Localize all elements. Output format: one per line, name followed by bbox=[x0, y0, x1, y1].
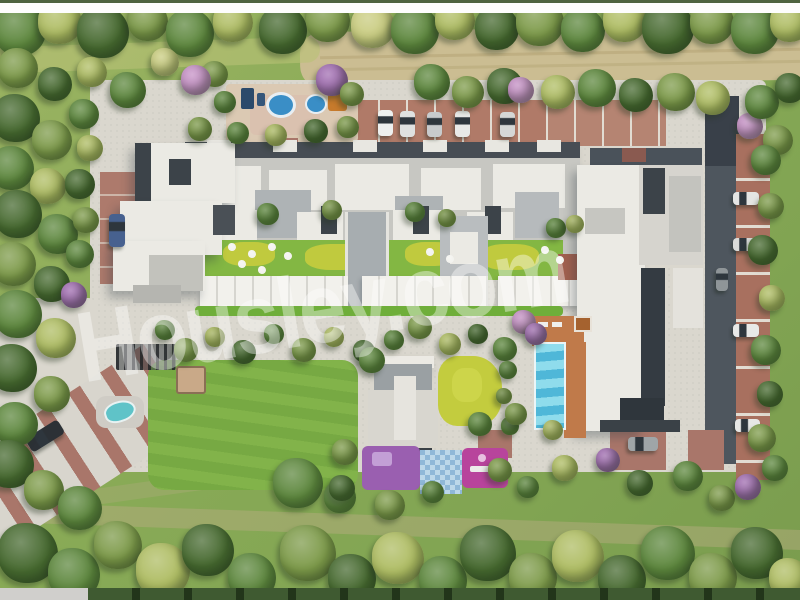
tree bbox=[619, 78, 653, 112]
tree bbox=[757, 381, 783, 407]
top-white-bar bbox=[0, 3, 800, 13]
tree bbox=[460, 525, 516, 581]
tree bbox=[332, 439, 358, 465]
tree bbox=[517, 476, 539, 498]
tree bbox=[0, 146, 34, 190]
tree bbox=[709, 485, 735, 511]
tree bbox=[505, 403, 527, 425]
tree bbox=[748, 424, 776, 452]
tree bbox=[561, 8, 605, 52]
tree bbox=[34, 376, 70, 412]
tree bbox=[745, 85, 779, 119]
bottom-strip-green bbox=[88, 588, 800, 600]
tree bbox=[499, 361, 517, 379]
tree bbox=[673, 461, 703, 491]
garden-table bbox=[248, 250, 256, 258]
tree bbox=[596, 448, 620, 472]
tree bbox=[0, 344, 37, 392]
tree bbox=[496, 388, 512, 404]
bottom-strip-left bbox=[0, 588, 88, 600]
tree bbox=[77, 135, 103, 161]
tree bbox=[493, 337, 517, 361]
tree bbox=[566, 215, 584, 233]
tree bbox=[110, 72, 146, 108]
tree bbox=[775, 73, 800, 103]
tree bbox=[543, 420, 563, 440]
tree bbox=[552, 530, 604, 582]
tree bbox=[36, 318, 76, 358]
tree bbox=[414, 64, 450, 100]
tree bbox=[66, 240, 94, 268]
tree bbox=[372, 532, 424, 584]
tree bbox=[304, 119, 328, 143]
tree bbox=[0, 48, 38, 88]
tree bbox=[657, 73, 695, 111]
tree bbox=[151, 48, 179, 76]
tree bbox=[762, 455, 788, 481]
tree bbox=[257, 203, 279, 225]
tree bbox=[452, 76, 484, 108]
tree bbox=[265, 124, 287, 146]
tree bbox=[94, 521, 142, 569]
tree bbox=[751, 335, 781, 365]
tree bbox=[181, 65, 211, 95]
tree bbox=[340, 82, 364, 106]
tree bbox=[58, 486, 102, 530]
tree bbox=[227, 122, 249, 144]
garden-table bbox=[268, 243, 276, 251]
tree bbox=[578, 69, 616, 107]
tree bbox=[214, 91, 236, 113]
tree bbox=[32, 120, 72, 160]
tree bbox=[77, 6, 129, 58]
tree bbox=[627, 470, 653, 496]
tree bbox=[405, 202, 425, 222]
tree bbox=[488, 458, 512, 482]
tree bbox=[552, 455, 578, 481]
tree bbox=[468, 412, 492, 436]
tree bbox=[329, 475, 355, 501]
tree bbox=[69, 99, 99, 129]
tree bbox=[751, 145, 781, 175]
tree bbox=[641, 526, 695, 580]
tree bbox=[73, 207, 99, 233]
tree bbox=[735, 474, 761, 500]
tree bbox=[375, 490, 405, 520]
tree bbox=[65, 169, 95, 199]
tree bbox=[182, 524, 234, 576]
tree bbox=[273, 458, 323, 508]
tree bbox=[337, 116, 359, 138]
tree bbox=[696, 81, 730, 115]
tree bbox=[322, 200, 342, 220]
tree bbox=[38, 67, 72, 101]
tree bbox=[438, 209, 456, 227]
garden-table bbox=[228, 243, 236, 251]
tree bbox=[188, 117, 212, 141]
tree bbox=[422, 481, 444, 503]
tree bbox=[166, 9, 214, 57]
tree bbox=[541, 75, 575, 109]
tree bbox=[748, 235, 778, 265]
tree bbox=[758, 193, 784, 219]
aerial-site-plan-render: Housley.com bbox=[0, 0, 800, 600]
tree bbox=[259, 6, 307, 54]
tree bbox=[391, 6, 439, 54]
tree bbox=[759, 285, 785, 311]
tree bbox=[0, 242, 36, 286]
tree bbox=[508, 77, 534, 103]
tree bbox=[77, 57, 107, 87]
